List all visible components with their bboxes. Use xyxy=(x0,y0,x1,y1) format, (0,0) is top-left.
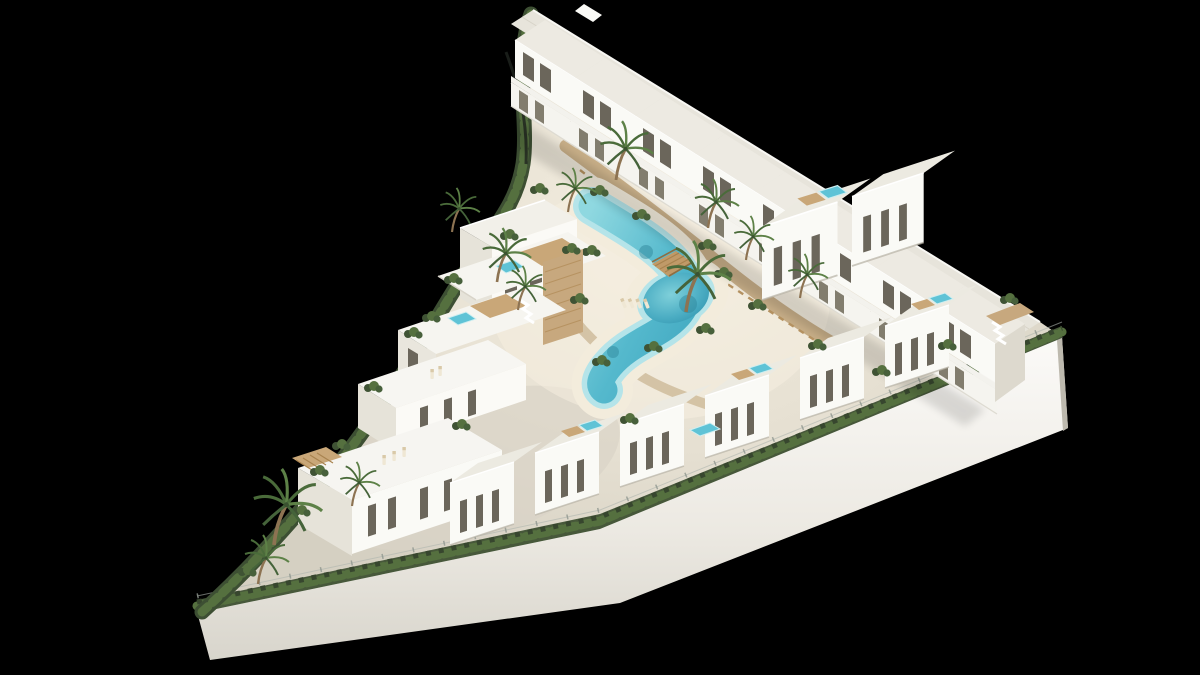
render-canvas: Aerial 3D render of a coastal residentia… xyxy=(0,0,1200,675)
architectural-render: Aerial 3D render of a coastal residentia… xyxy=(0,0,1200,675)
